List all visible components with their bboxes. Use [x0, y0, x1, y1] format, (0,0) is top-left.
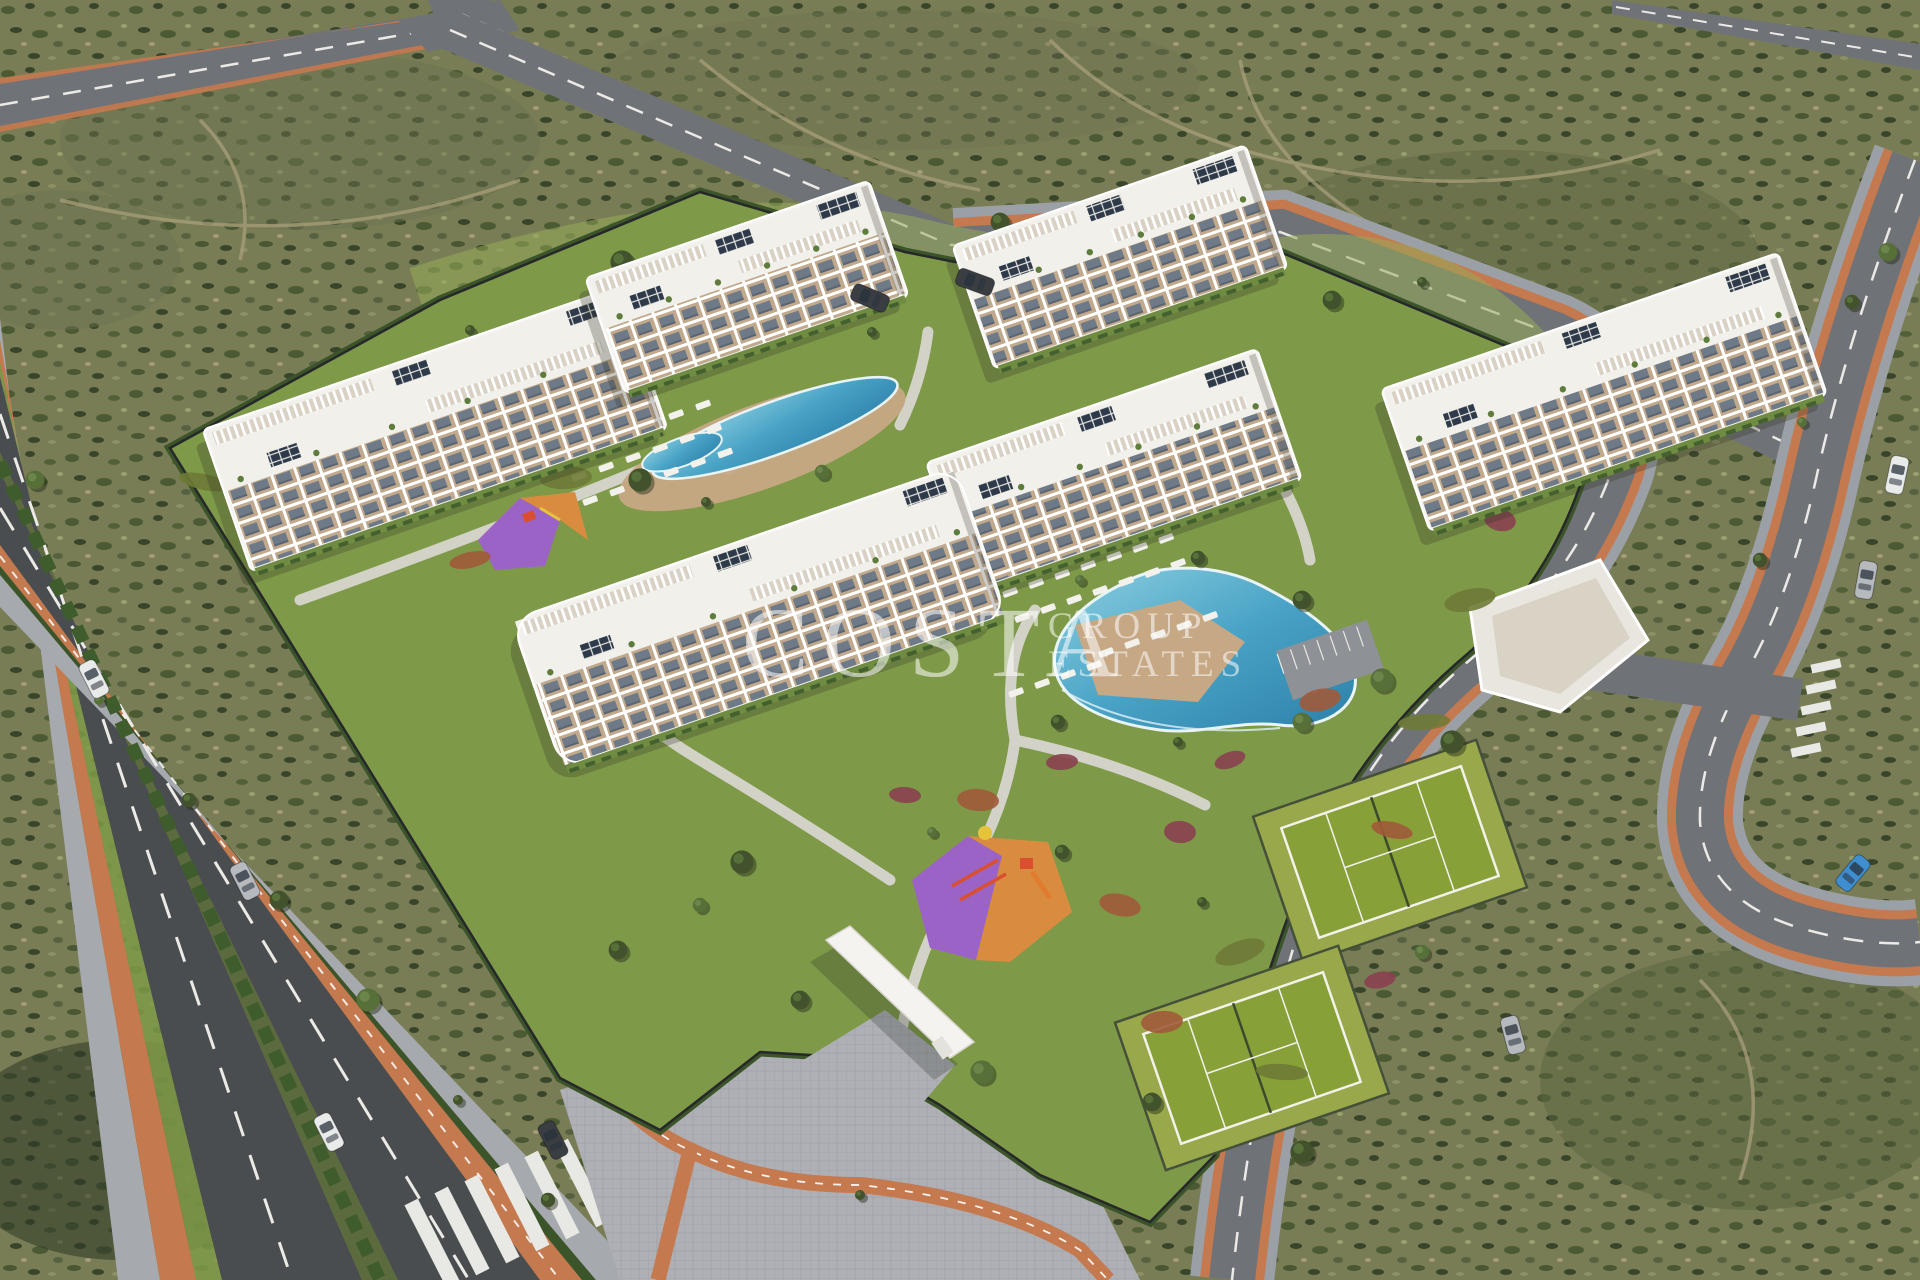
watermark-secondary: GROUP [1048, 606, 1208, 647]
playground-umbrella [978, 826, 992, 840]
watermark-tertiary: ESTATES [1048, 644, 1248, 685]
scene-svg: COSTA GROUP ESTATES [0, 0, 1920, 1280]
aerial-render-image: COSTA GROUP ESTATES [0, 0, 1920, 1280]
